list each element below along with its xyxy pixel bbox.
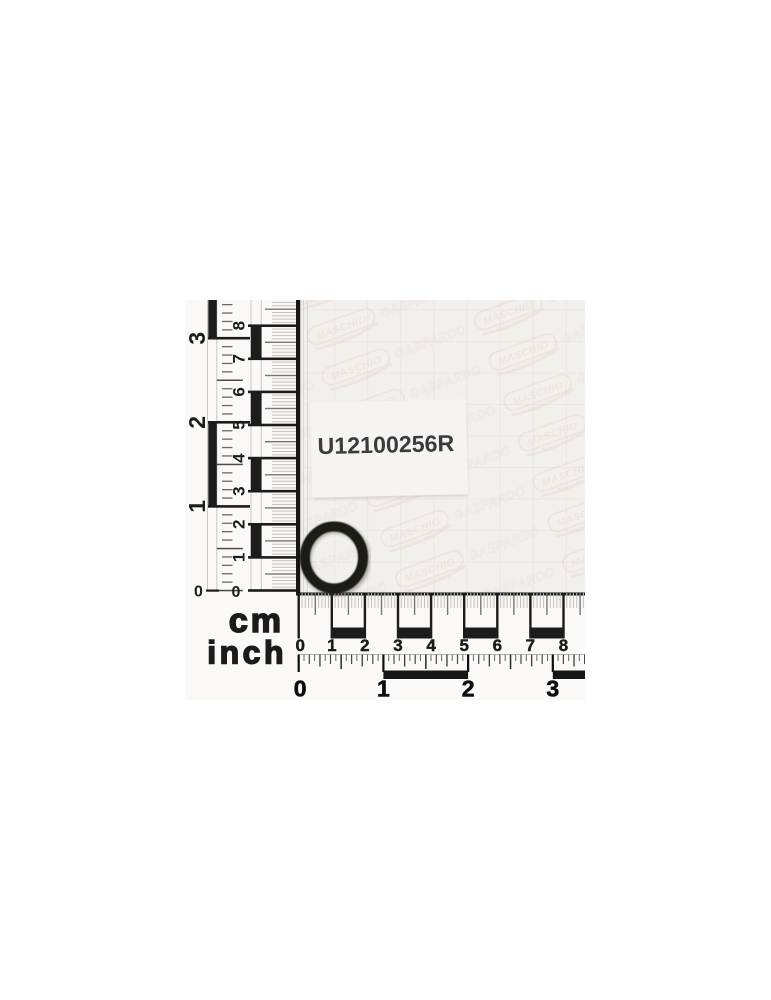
- svg-text:5: 5: [230, 420, 249, 429]
- svg-text:2: 2: [230, 520, 249, 529]
- svg-text:6: 6: [493, 636, 502, 655]
- svg-text:1: 1: [230, 553, 249, 562]
- svg-text:7: 7: [526, 636, 535, 655]
- svg-text:2: 2: [462, 676, 475, 701]
- svg-text:0: 0: [295, 636, 304, 655]
- svg-text:0: 0: [294, 676, 307, 701]
- svg-text:3: 3: [185, 332, 210, 345]
- svg-text:4: 4: [426, 636, 436, 655]
- svg-text:8: 8: [559, 636, 568, 655]
- svg-text:3: 3: [393, 636, 402, 655]
- svg-text:1: 1: [377, 676, 390, 701]
- svg-text:6: 6: [230, 387, 249, 396]
- svg-text:2: 2: [185, 416, 210, 429]
- svg-text:7: 7: [230, 354, 249, 363]
- svg-text:5: 5: [459, 636, 468, 655]
- svg-text:4: 4: [230, 453, 249, 463]
- svg-text:1: 1: [185, 500, 210, 513]
- svg-text:0: 0: [194, 584, 203, 601]
- svg-text:0: 0: [232, 584, 241, 601]
- svg-text:U12100256R: U12100256R: [317, 430, 454, 459]
- svg-text:8: 8: [230, 321, 249, 330]
- svg-text:1: 1: [327, 636, 336, 655]
- svg-text:2: 2: [360, 636, 369, 655]
- svg-text:inch: inch: [207, 635, 287, 671]
- svg-text:3: 3: [546, 676, 559, 701]
- svg-text:3: 3: [230, 486, 249, 495]
